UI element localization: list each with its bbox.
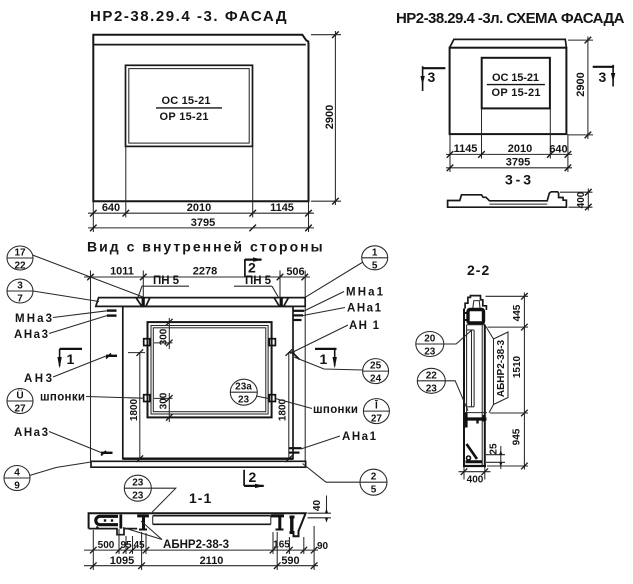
svg-text:300: 300 bbox=[158, 328, 169, 345]
svg-text:2010: 2010 bbox=[508, 143, 532, 155]
svg-text:АНа1: АНа1 bbox=[342, 431, 377, 443]
svg-text:2110: 2110 bbox=[200, 555, 224, 567]
svg-text:300: 300 bbox=[158, 392, 169, 409]
svg-text:ОС 15-21: ОС 15-21 bbox=[162, 95, 211, 107]
svg-text:3: 3 bbox=[428, 69, 436, 85]
svg-text:2278: 2278 bbox=[193, 266, 217, 278]
svg-text:20: 20 bbox=[424, 334, 436, 345]
svg-text:НР2-38.29.4 -3. ФАСАД: НР2-38.29.4 -3. ФАСАД bbox=[90, 8, 287, 25]
svg-text:1095: 1095 bbox=[110, 555, 134, 567]
svg-text:90: 90 bbox=[317, 541, 329, 552]
svg-text:23: 23 bbox=[238, 395, 250, 406]
svg-text:4: 4 bbox=[14, 468, 20, 479]
svg-text:1: 1 bbox=[320, 351, 328, 367]
svg-text:1145: 1145 bbox=[454, 143, 478, 155]
svg-text:ПН 5: ПН 5 bbox=[153, 275, 180, 287]
svg-text:ОР 15-21: ОР 15-21 bbox=[492, 87, 541, 99]
svg-text:1145: 1145 bbox=[270, 202, 294, 214]
svg-text:25: 25 bbox=[370, 361, 382, 372]
svg-text:45: 45 bbox=[133, 540, 145, 551]
svg-text:2010: 2010 bbox=[187, 202, 211, 214]
svg-text:22: 22 bbox=[426, 370, 438, 381]
svg-text:МНа3: МНа3 bbox=[15, 313, 52, 325]
svg-text:2-2: 2-2 bbox=[467, 262, 490, 278]
svg-text:23: 23 bbox=[424, 347, 436, 358]
svg-text:640: 640 bbox=[102, 202, 120, 214]
svg-text:2: 2 bbox=[249, 469, 257, 485]
svg-text:Ü: Ü bbox=[16, 389, 23, 402]
svg-text:1011: 1011 bbox=[110, 266, 134, 278]
svg-text:шпонки: шпонки bbox=[313, 404, 358, 416]
svg-text:25: 25 bbox=[488, 443, 499, 455]
svg-text:400: 400 bbox=[467, 475, 484, 486]
svg-text:27: 27 bbox=[14, 404, 26, 415]
svg-text:1-1: 1-1 bbox=[189, 490, 212, 506]
svg-text:АНа3: АНа3 bbox=[14, 329, 48, 341]
svg-text:АБНР2-38-3: АБНР2-38-3 bbox=[496, 339, 507, 397]
svg-text:шпонки: шпонки bbox=[40, 392, 85, 404]
svg-text:27: 27 bbox=[371, 414, 383, 425]
svg-text:АБНР2-38-3: АБНР2-38-3 bbox=[163, 539, 229, 551]
svg-text:640: 640 bbox=[549, 144, 567, 156]
svg-text:1510: 1510 bbox=[512, 355, 523, 378]
svg-text:590: 590 bbox=[281, 555, 299, 567]
svg-text:АН 1: АН 1 bbox=[349, 320, 380, 332]
svg-text:22: 22 bbox=[14, 261, 26, 272]
svg-text:23: 23 bbox=[132, 478, 144, 489]
svg-text:500: 500 bbox=[98, 540, 115, 551]
svg-text:23а: 23а bbox=[235, 382, 252, 393]
svg-text:2: 2 bbox=[248, 260, 256, 276]
svg-text:1: 1 bbox=[372, 247, 378, 258]
svg-text:5: 5 bbox=[372, 260, 378, 271]
svg-text:400: 400 bbox=[576, 191, 587, 208]
svg-text:АНа1: АНа1 bbox=[347, 303, 382, 315]
svg-text:Ī: Ī bbox=[374, 400, 378, 412]
svg-text:1800: 1800 bbox=[129, 398, 140, 421]
svg-text:5: 5 bbox=[371, 485, 377, 496]
svg-text:АН3: АН3 bbox=[24, 373, 52, 385]
svg-text:40: 40 bbox=[312, 500, 323, 512]
svg-text:506: 506 bbox=[286, 266, 304, 278]
svg-text:3795: 3795 bbox=[506, 157, 530, 169]
svg-text:3-3: 3-3 bbox=[505, 172, 531, 188]
svg-text:1: 1 bbox=[67, 351, 75, 367]
svg-text:МНа1: МНа1 bbox=[346, 287, 384, 299]
svg-text:3: 3 bbox=[17, 281, 23, 292]
svg-text:ПН 5: ПН 5 bbox=[245, 275, 272, 287]
svg-text:23: 23 bbox=[132, 491, 144, 502]
svg-text:24: 24 bbox=[370, 374, 382, 385]
svg-text:2900: 2900 bbox=[575, 72, 587, 96]
svg-text:ОР 15-21: ОР 15-21 bbox=[160, 111, 209, 123]
svg-text:945: 945 bbox=[511, 428, 522, 445]
svg-text:7: 7 bbox=[17, 294, 23, 305]
svg-text:445: 445 bbox=[512, 304, 523, 321]
svg-text:2900: 2900 bbox=[324, 105, 336, 129]
svg-text:ОС 15-21: ОС 15-21 bbox=[492, 72, 539, 84]
svg-text:95: 95 bbox=[120, 540, 132, 551]
svg-text:НР2-38.29.4 -3л. СХЕМА ФАСАДА: НР2-38.29.4 -3л. СХЕМА ФАСАДА bbox=[396, 10, 625, 27]
svg-text:АНа3: АНа3 bbox=[14, 427, 48, 439]
svg-text:Вид с внутренней стороны: Вид с внутренней стороны bbox=[87, 239, 323, 255]
svg-text:17: 17 bbox=[14, 248, 26, 259]
svg-text:23: 23 bbox=[426, 383, 438, 394]
svg-text:3: 3 bbox=[599, 69, 607, 85]
svg-text:9: 9 bbox=[14, 481, 20, 492]
svg-text:165: 165 bbox=[273, 540, 290, 551]
svg-text:2: 2 bbox=[371, 472, 377, 483]
svg-text:3795: 3795 bbox=[191, 217, 215, 229]
